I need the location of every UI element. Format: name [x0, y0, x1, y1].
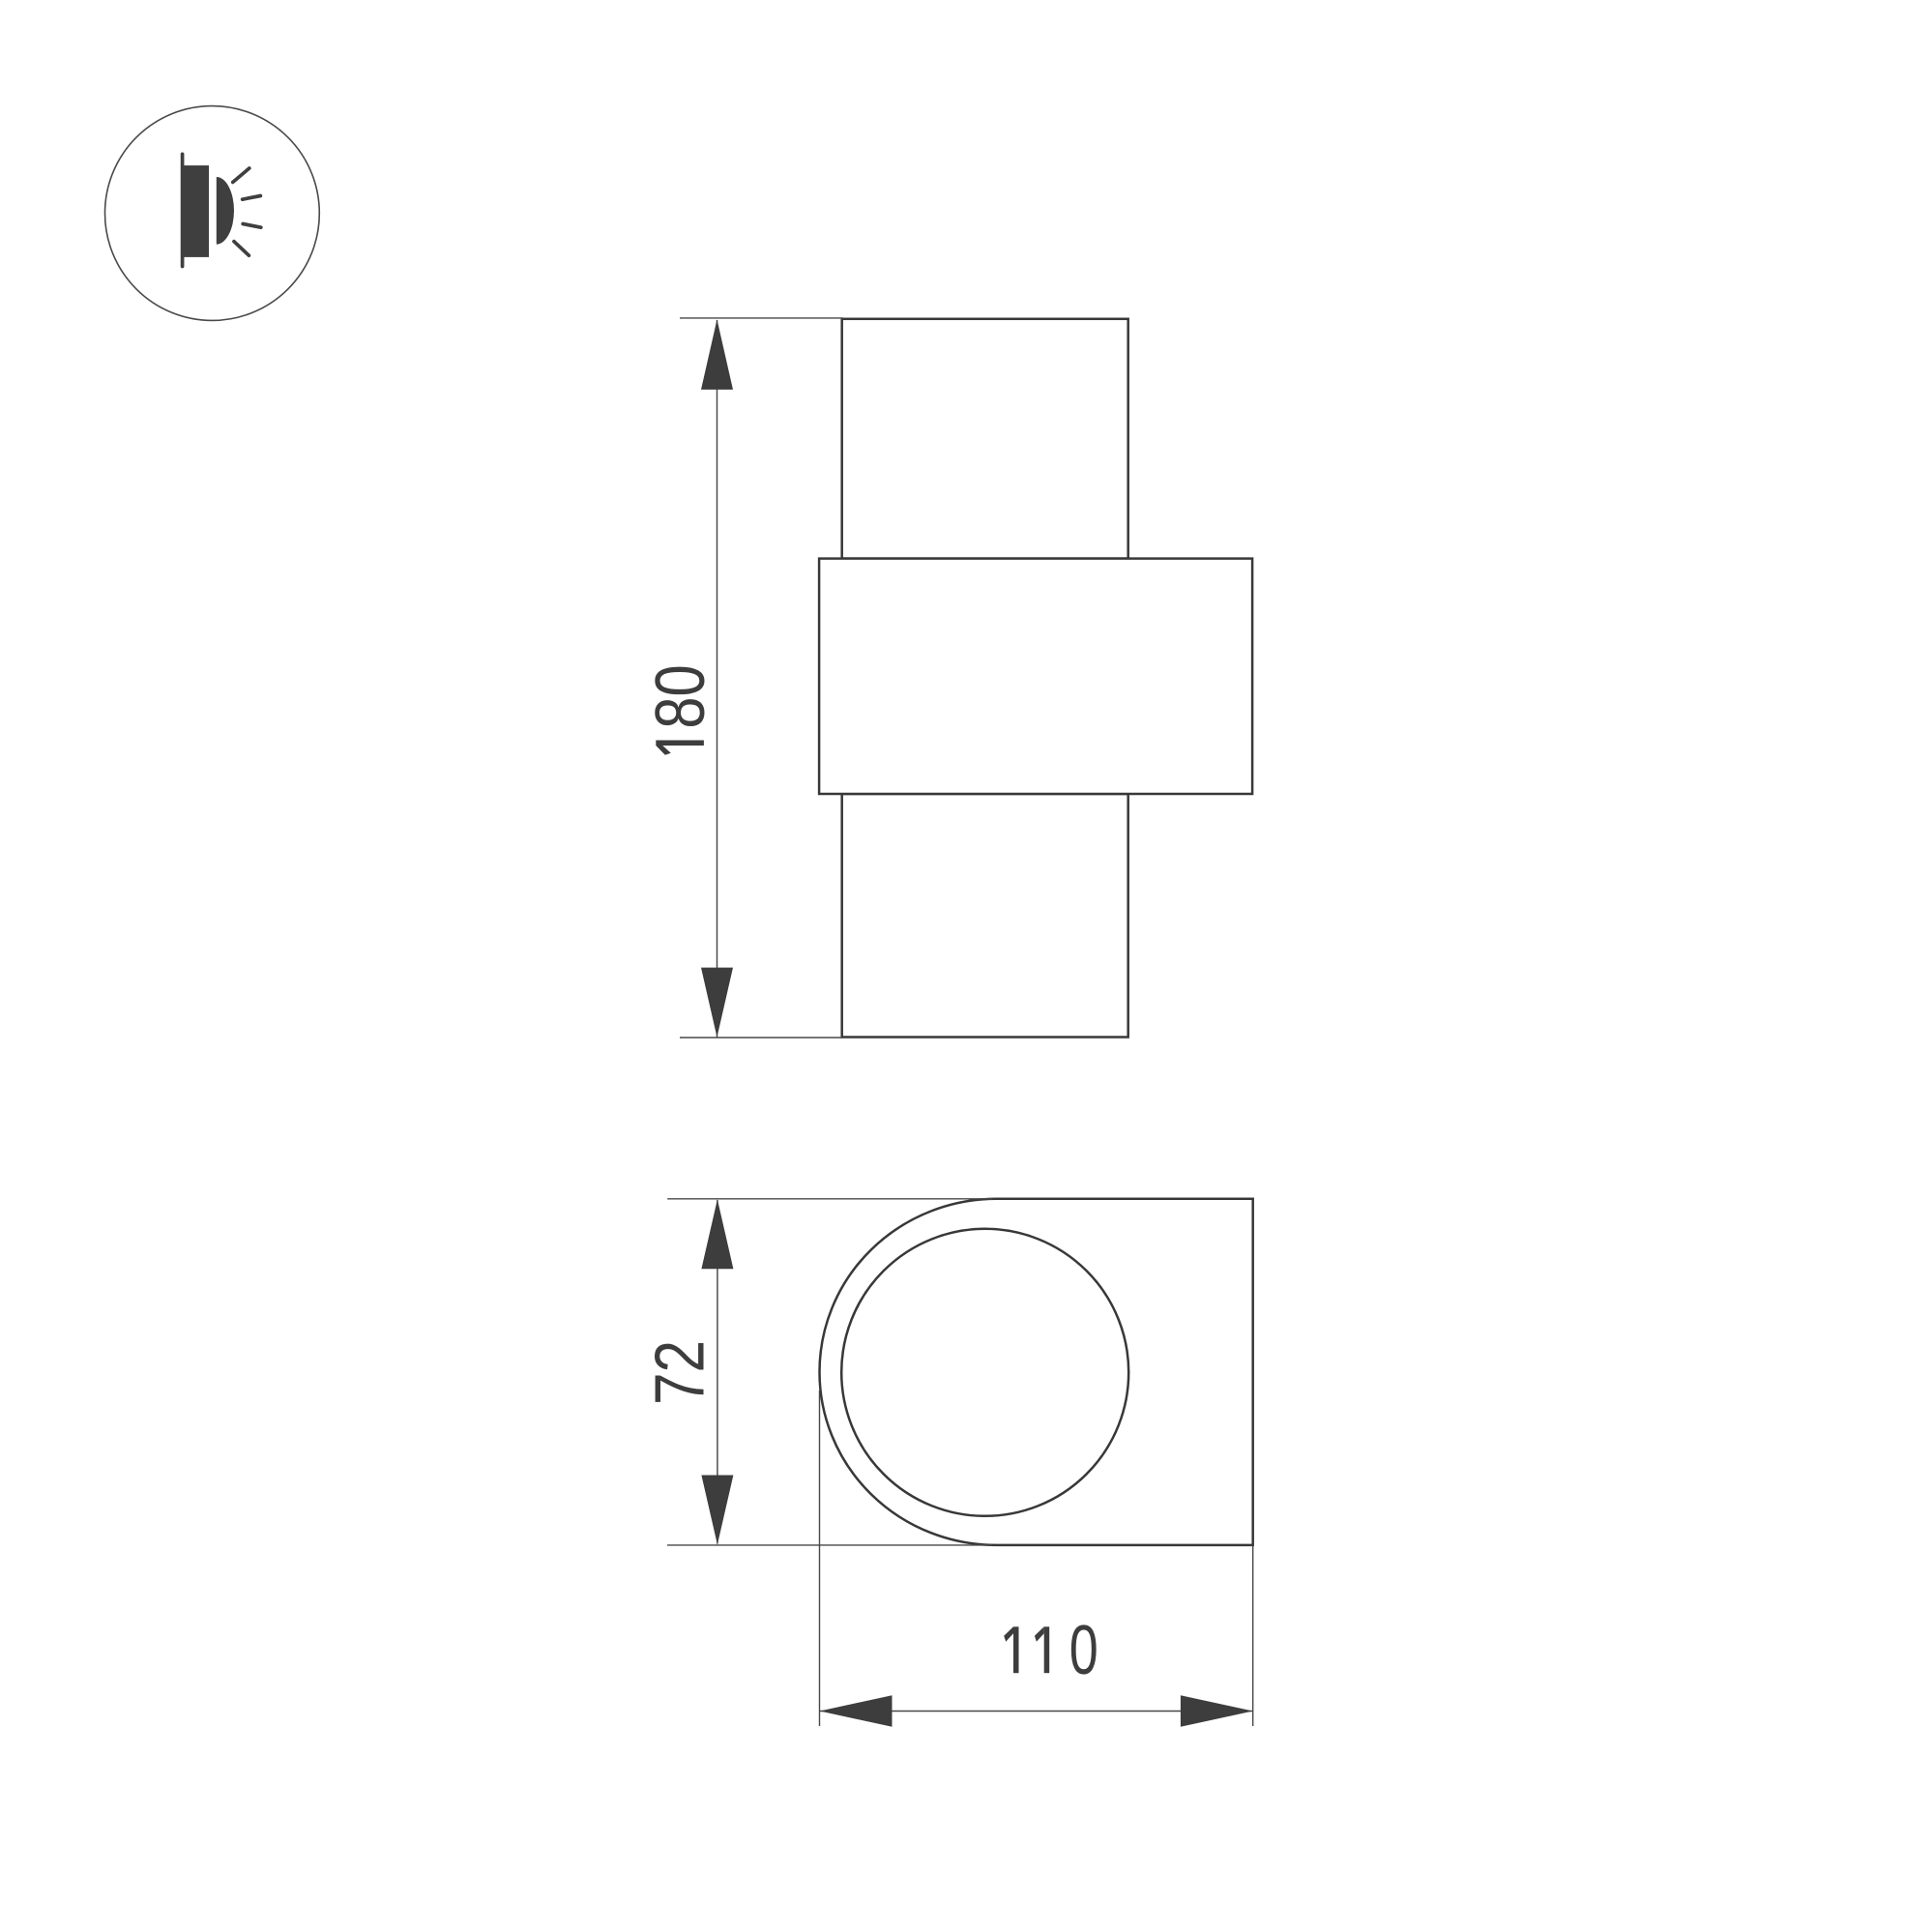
svg-text:72: 72	[641, 1340, 718, 1405]
svg-text:0: 0	[1069, 1612, 1098, 1689]
svg-text:80: 80	[642, 664, 719, 728]
